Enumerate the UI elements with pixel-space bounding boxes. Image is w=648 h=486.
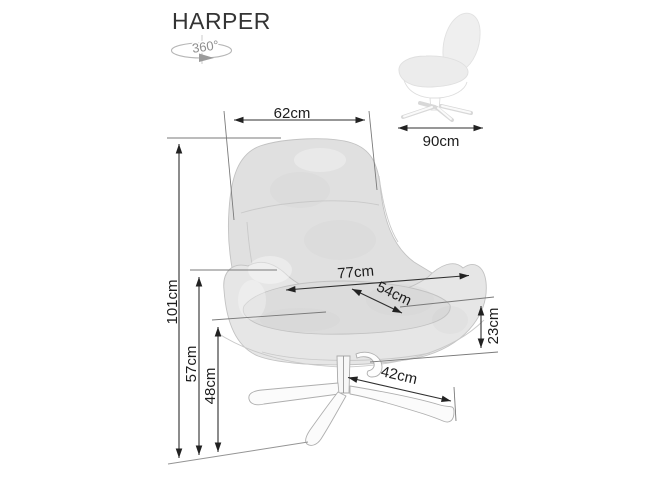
arrowhead xyxy=(196,446,203,456)
base-leg-right xyxy=(350,386,454,422)
dimension-side-depth: 90cm xyxy=(398,125,483,150)
rotation-360-icon: 360° xyxy=(172,35,232,64)
arrowhead xyxy=(215,327,222,337)
armchair-side-illustration xyxy=(399,13,480,120)
side-chair-seat xyxy=(399,56,468,87)
arrowhead xyxy=(356,117,366,124)
arrowhead xyxy=(196,277,203,287)
dimension-label: 42cm xyxy=(379,363,419,388)
rotation-arrowhead xyxy=(199,54,214,63)
dimension-label: 101cm xyxy=(164,279,181,324)
dimension-label: 23cm xyxy=(485,308,502,345)
arrowhead xyxy=(478,339,485,349)
swivel-base xyxy=(249,352,454,445)
armchair-front-illustration xyxy=(168,139,486,464)
arrowhead xyxy=(441,396,452,405)
dimension-label: 62cm xyxy=(274,105,311,122)
arrowhead xyxy=(176,449,183,459)
dimension-label: 77cm xyxy=(337,263,375,283)
ground-line xyxy=(168,442,308,464)
dimension-label: 90cm xyxy=(423,133,460,150)
dimensions-diagram: HARPER 360° xyxy=(0,0,648,486)
dimension-label: 57cm xyxy=(183,346,200,383)
arrowhead xyxy=(215,443,222,453)
base-leg-left xyxy=(249,383,339,405)
dimension-label: 48cm xyxy=(202,368,219,405)
page-title: HARPER xyxy=(172,8,271,34)
extension-line xyxy=(224,111,234,220)
arrowhead xyxy=(474,125,484,132)
arrowhead xyxy=(234,117,244,124)
arrowhead xyxy=(398,125,408,132)
product-dimension-sheet: HARPER 360° xyxy=(0,0,648,486)
rotation-degrees-label: 360° xyxy=(191,37,220,56)
extension-line xyxy=(454,387,456,421)
base-leg-front xyxy=(306,392,346,445)
arrowhead xyxy=(176,144,183,154)
